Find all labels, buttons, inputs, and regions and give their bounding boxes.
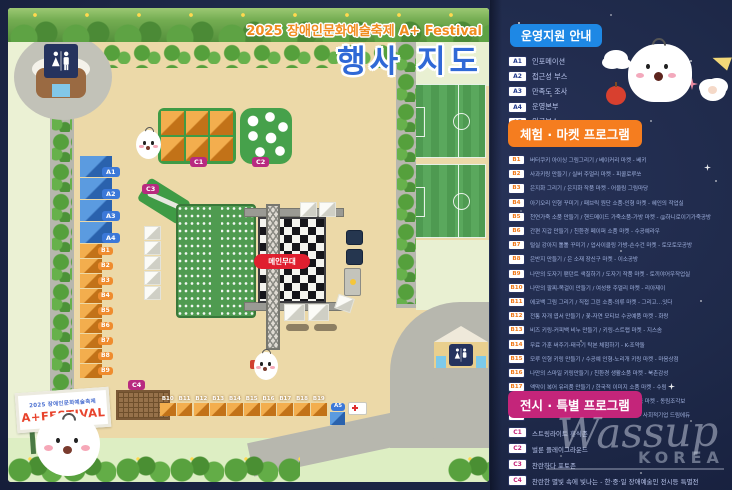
- booth-b: B9: [80, 364, 140, 379]
- booth-b: B6: [80, 319, 140, 334]
- speaker: [346, 249, 363, 265]
- booth-b: B2: [80, 259, 140, 274]
- orange-tent: [277, 403, 293, 416]
- zone-label-c3: C3: [142, 184, 159, 194]
- booth-b: B10: [160, 396, 176, 416]
- section-experience-market: 체험 · 마켓 프로그램 B1 버터쿠키 아이싱 그림그리기 / 베이커리 마켓…: [508, 120, 711, 425]
- section-title-operations: 운영지원 안내: [510, 24, 602, 47]
- booth-label: B4: [98, 292, 113, 300]
- booth-label: B2: [98, 262, 113, 270]
- booth-b: B7: [80, 334, 140, 349]
- booth-label: B9: [98, 367, 113, 375]
- booth-label: B3: [98, 277, 113, 285]
- booth-b: B1: [80, 244, 140, 259]
- booth-description: 찬란한 별빛 속에 빛나는 - 한·중·일 장애예술인 전시등 특별전: [532, 476, 699, 486]
- festival-map-poster: 2025 장애인문화예술축제 A+ Festival 행사 지도 A1 A2 A…: [0, 0, 732, 490]
- booth-row-bottom: B10 B11 B12 B13 B14 B15 B16 B17: [160, 396, 327, 416]
- restroom-building-bottomright: [432, 326, 489, 374]
- booth-code-badge: B16: [508, 368, 525, 378]
- booth-label: B1: [98, 247, 113, 255]
- map-title: 행사 지도: [148, 36, 482, 81]
- booth-description: 은지화 그리기 / 은지화 작품 마켓 - 어울림 그림마당: [530, 184, 648, 192]
- booth-description: 천연가죽 소품 만들기 / 핸드메이드 가죽소품-가방 마켓 - @하니로이기가…: [530, 213, 711, 221]
- booth-code-badge: B11: [508, 297, 525, 307]
- zone-c2-balloon-playground: [240, 108, 292, 164]
- support-truck: [344, 268, 361, 296]
- stage-truss-tower: [266, 204, 280, 350]
- legend-item: A3 만족도 조사: [508, 86, 602, 97]
- speaker: [346, 230, 363, 245]
- orange-tent: [294, 403, 310, 416]
- megaphone-icon: [710, 51, 732, 70]
- booth-code-badge: B2: [508, 169, 525, 179]
- soccer-field-1: [414, 84, 486, 158]
- booth-b: B4: [80, 289, 140, 304]
- legend-item: B6 간편 지갑 만들기 / 친환경 페이퍼 소품 마켓 - 수공예라우: [508, 226, 711, 236]
- booth-a5: A5: [330, 392, 346, 425]
- section-title-experience-market: 체험 · 마켓 프로그램: [508, 120, 642, 147]
- restroom-sign: [44, 44, 78, 78]
- booth-description: 나만의 팔찌-목걸이 만들기 / 여성용 주얼리 마켓 - 리아제이: [530, 284, 665, 292]
- orange-tent: [311, 403, 327, 416]
- medical-van: [348, 402, 367, 415]
- booth-code-badge: B5: [508, 212, 525, 222]
- booth-label: B17: [277, 396, 293, 403]
- center-circle: [453, 113, 470, 130]
- legend-item: B13 비즈 키링-커피백 비누 만들기 / 키링-스트랩 마켓 - 지스솜: [508, 325, 711, 335]
- booth-code-badge: A3: [508, 86, 527, 97]
- booth-code-badge: A2: [508, 71, 527, 82]
- bush-row-bottom-right: [448, 454, 489, 482]
- orange-tent: [210, 403, 226, 416]
- audience-seating: [176, 204, 256, 318]
- booth-label: B6: [98, 322, 113, 330]
- zone-c1-string-light: [158, 108, 236, 164]
- booth-description: 털실 강아지 톨톨 꾸미기 / 업사이클링 가방-손수건 마켓 - 토모토모공방: [530, 241, 692, 249]
- booth-code-badge: B7: [508, 240, 525, 250]
- legend-item: B14 무료 가훈 써주기-태극기 탁본 체험하기 - K-조약돌: [508, 339, 711, 349]
- booth-code-badge: B12: [508, 311, 525, 321]
- zone-label-c4: C4: [128, 380, 145, 390]
- booth-label: B8: [98, 352, 113, 360]
- lamb-character: [700, 80, 726, 101]
- booth-label: B12: [194, 396, 210, 403]
- booth-label: B11: [177, 396, 193, 403]
- legend-item: A1 인포메이션: [508, 56, 602, 67]
- orange-tent: [160, 403, 176, 416]
- white-tents-south: [284, 304, 329, 321]
- booth-description: 나만의 도자기 팬던트 색칠하기 / 도자기 작품 마켓 - 토끼야어우작업실: [530, 270, 690, 278]
- mascot-with-sign: [36, 412, 100, 476]
- booth-b: B13: [210, 396, 226, 416]
- booth-description: 나만의 스마일 키링만들기 / 친환경 생활소품 마켓 - 북촌감성: [530, 369, 668, 377]
- mascot-character: [136, 130, 161, 159]
- booth-b: B15: [244, 396, 260, 416]
- booth-description: 아기오리 인형 꾸미기 / 패브릭 원단 소품-인형 마켓 - 혜인의 작업실: [530, 199, 684, 207]
- legend-item: A2 접근성 부스: [508, 71, 602, 82]
- soccer-field-2: [414, 164, 486, 238]
- legend-item: B7 털실 강아지 톨톨 꾸미기 / 업사이클링 가방-손수건 마켓 - 토모토…: [508, 240, 711, 250]
- booth-description: 운영본부: [532, 102, 558, 112]
- experience-market-list: B1 버터쿠키 아이싱 그림그리기 / 베이커리 마켓 - 베키 B2 사과키링…: [508, 155, 711, 421]
- legend-item: A4 운영본부: [508, 102, 602, 113]
- watermark-korea: KOREA: [638, 448, 724, 467]
- apple-icon: [606, 86, 626, 105]
- booth-description: 에코백 그림 그리기 / 직접 그린 소품-의류 마켓 - 그리고…잇다: [530, 298, 672, 306]
- booth-column-a: A1 A2 A3 A4: [80, 156, 140, 244]
- booth-b: B18: [294, 396, 310, 416]
- booth-b: B3: [80, 274, 140, 289]
- mascot-character: [254, 352, 278, 380]
- booth-description: 간편 지갑 만들기 / 친환경 페이퍼 소품 마켓 - 수공예라우: [530, 227, 660, 235]
- booth-label: B5: [98, 307, 113, 315]
- center-circle: [453, 193, 470, 210]
- booth-code-badge: C2: [508, 443, 527, 454]
- booth-label: B13: [210, 396, 226, 403]
- booth-a: A2: [80, 178, 140, 200]
- orange-tent: [227, 403, 243, 416]
- blue-tent: [330, 412, 345, 425]
- booth-description: 사과키링 만들기 / 실버 주얼리 마켓 - 피콜로루쏘: [530, 170, 641, 178]
- cloud-paw: [604, 50, 628, 67]
- tent-name-oval: [286, 324, 309, 331]
- booth-code-badge: B4: [508, 198, 525, 208]
- booth-description: 접근성 부스: [532, 72, 567, 82]
- booth-code-badge: B3: [508, 183, 525, 193]
- booth-b: B14: [227, 396, 243, 416]
- restroom-sign: [449, 344, 473, 366]
- legend-item: B5 천연가죽 소품 만들기 / 핸드메이드 가죽소품-가방 마켓 - @하니로…: [508, 212, 711, 222]
- main-stage-label: 메인무대: [254, 254, 310, 269]
- booth-code-badge: A1: [508, 56, 527, 67]
- legend-item: B4 아기오리 인형 꾸미기 / 패브릭 원단 소품-인형 마켓 - 혜인의 작…: [508, 198, 711, 208]
- legend-item: B15 모루 인형 키링 만들기 / 수공예 인형-노리개 키링 마켓 - 마음…: [508, 354, 711, 364]
- booth-code-badge: B13: [508, 325, 525, 335]
- booth-label: A1: [102, 167, 120, 177]
- white-tents-stage-top: [300, 202, 336, 217]
- tent-name-oval: [314, 324, 337, 331]
- booth-label: A3: [102, 211, 120, 221]
- booth-label: A5: [331, 403, 345, 411]
- orange-tent: [194, 403, 210, 416]
- booth-b: B17: [277, 396, 293, 416]
- booth-code-badge: B8: [508, 254, 525, 264]
- booth-label: B15: [244, 396, 260, 403]
- legend-item: B16 나만의 스마일 키링만들기 / 친환경 생활소품 마켓 - 북촌감성: [508, 368, 711, 378]
- legend-item: B1 버터쿠키 아이싱 그림그리기 / 베이커리 마켓 - 베키: [508, 155, 711, 165]
- legend-item: B3 은지화 그리기 / 은지화 작품 마켓 - 어울림 그림마당: [508, 183, 711, 193]
- booth-description: 모루 인형 키링 만들기 / 수공예 인형-노리개 키링 마켓 - 마음상점: [530, 355, 679, 363]
- watermark-underline: [546, 468, 724, 470]
- booth-label: B7: [98, 337, 113, 345]
- restroom-icon: [48, 49, 74, 73]
- booth-description: 전통 자개 엽서 만들기 / 꽃-자연 모티브 수공예품 마켓 - 화랑: [530, 312, 668, 320]
- booth-b: B8: [80, 349, 140, 364]
- restroom-building-topleft: [32, 44, 90, 102]
- booth-description: 인포메이션: [532, 57, 565, 67]
- booth-b: B5: [80, 304, 140, 319]
- grass-right-bottom: [416, 240, 489, 310]
- orange-tent: [244, 403, 260, 416]
- booth-code-badge: B15: [508, 354, 525, 364]
- booth-code-badge: C3: [508, 459, 527, 470]
- booth-description: 무료 가훈 써주기-태극기 탁본 체험하기 - K-조약돌: [530, 341, 645, 349]
- mascot-illustration: [600, 38, 730, 123]
- booth-column-b: B1 B2 B3 B4 B5 B6 B7 B8: [80, 244, 140, 379]
- restroom-icon: [452, 347, 470, 363]
- booth-code-badge: B6: [508, 226, 525, 236]
- booth-code-badge: C1: [508, 427, 527, 438]
- white-tent-column: [144, 226, 161, 301]
- orange-tent: [177, 403, 193, 416]
- legend-item: B2 사과키링 만들기 / 실버 주얼리 마켓 - 피콜로루쏘: [508, 169, 711, 179]
- operations-list: A1 인포메이션 A2 접근성 부스 A3 만족도 조사 A4 운영본부 A5 …: [508, 56, 602, 128]
- booth-description: 비즈 키링-커피백 비누 만들기 / 키링-스트랩 마켓 - 지스솜: [530, 326, 662, 334]
- booth-label: B19: [311, 396, 327, 403]
- booth-code-badge: B10: [508, 283, 525, 293]
- booth-b: B12: [194, 396, 210, 416]
- booth-a: A1: [80, 156, 140, 178]
- legend-item: B10 나만의 팔찌-목걸이 만들기 / 여성용 주얼리 마켓 - 리아제이: [508, 283, 711, 293]
- booth-label: A4: [102, 233, 120, 243]
- orange-tent: [261, 403, 277, 416]
- legend-item: B12 전통 자개 엽서 만들기 / 꽃-자연 모티브 수공예품 마켓 - 화랑: [508, 311, 711, 321]
- legend-item: B9 나만의 도자기 팬던트 색칠하기 / 도자기 작품 마켓 - 토끼야어우작…: [508, 269, 711, 279]
- booth-description: 액막이 복어 유리품 만들기 / 한국적 이미지 소품 마켓 - 수림: [530, 383, 667, 391]
- booth-label: B16: [261, 396, 277, 403]
- tree-row-right: [397, 42, 416, 304]
- section-operations: 운영지원 안내 A1 인포메이션 A2 접근성 부스 A3 만족도 조사 A4 …: [508, 24, 602, 132]
- booth-code-badge: C4: [508, 475, 527, 486]
- booth-b: B16: [261, 396, 277, 416]
- booth-code-badge: B9: [508, 269, 525, 279]
- booth-b: B19: [311, 396, 327, 416]
- venue-map: 2025 장애인문화예술축제 A+ Festival 행사 지도 A1 A2 A…: [8, 8, 489, 482]
- zone-label-c2: C2: [252, 157, 269, 167]
- legend-item: B8 은반지 만들기 / 은 소재 장신구 마켓 - 이소공방: [508, 254, 711, 264]
- legend-item: B11 에코백 그림 그리기 / 직접 그린 소품-의류 마켓 - 그리고…잇다: [508, 297, 711, 307]
- booth-a: A3: [80, 200, 140, 222]
- booth-label: B10: [160, 396, 176, 403]
- legend-item: C4 찬란한 별빛 속에 빛나는 - 한·중·일 장애예술인 전시등 특별전: [508, 475, 699, 486]
- booth-description: 은반지 만들기 / 은 소재 장신구 마켓 - 이소공방: [530, 255, 638, 263]
- booth-label: A2: [102, 189, 120, 199]
- booth-code-badge: A4: [508, 102, 527, 113]
- aisle: [211, 206, 221, 316]
- booth-code-badge: B1: [508, 155, 525, 165]
- booth-label: B18: [294, 396, 310, 403]
- booth-description: 만족도 조사: [532, 87, 567, 97]
- booth-b: B11: [177, 396, 193, 416]
- zone-label-c1: C1: [190, 157, 207, 167]
- booth-code-badge: B14: [508, 339, 525, 349]
- booth-description: 버터쿠키 아이싱 그림그리기 / 베이커리 마켓 - 베키: [530, 156, 646, 164]
- booth-a: A4: [80, 222, 140, 244]
- booth-label: B14: [227, 396, 243, 403]
- legend-panel: 운영지원 안내 A1 인포메이션 A2 접근성 부스 A3 만족도 조사 A4 …: [490, 0, 732, 490]
